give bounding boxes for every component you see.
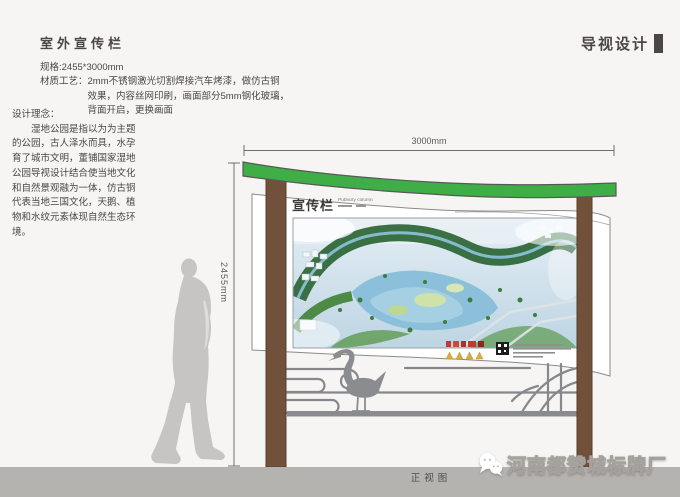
concept-label: 设计理念： xyxy=(12,108,139,123)
human-silhouette xyxy=(151,259,225,465)
dim-width-label: 3000mm xyxy=(329,136,529,146)
right-header-title: 导视设计 xyxy=(581,33,649,54)
spec-size: 规格:2455*3000mm xyxy=(40,61,289,75)
spec-block: 室外宣传栏 规格:2455*3000mm 材质工艺： 2mm不锈钢激光切割焊接汽… xyxy=(40,33,289,118)
material-line: 效果，内容丝网印刷，画面部分5mm钢化玻璃， xyxy=(88,90,290,104)
header-accent-bar xyxy=(654,34,663,53)
park-aerial-image xyxy=(260,214,595,351)
green-top-band xyxy=(243,162,616,198)
dim-height-label: 2455mm xyxy=(219,262,229,303)
right-post xyxy=(577,192,592,467)
concept-body: 湿地公园是指以为为主题的公园，古人泽水而具，水孕育了城市文明，董铺国家湿地公园导… xyxy=(12,123,139,241)
watermark: 河南都赞城标牌厂 xyxy=(477,451,667,478)
panel-subtext-bars xyxy=(338,205,381,207)
lattice-bottom-rail xyxy=(287,411,577,417)
qr-code-icon xyxy=(496,342,509,355)
left-post xyxy=(266,171,286,467)
lattice-ornament xyxy=(287,364,577,413)
panel-title: 宣传栏 xyxy=(292,195,334,214)
factory-name: 河南都赞城标牌厂 xyxy=(507,451,667,478)
material-line: 2mm不锈钢激光切割焊接汽车烤漆，做仿古铜 xyxy=(88,75,290,89)
header-right: 导视设计 xyxy=(581,33,663,54)
view-label: 正视图 xyxy=(371,470,491,484)
concept-block: 设计理念： 湿地公园是指以为为主题的公园，古人泽水而具，水孕育了城市文明，董铺国… xyxy=(12,108,139,240)
design-sheet: 室外宣传栏 规格:2455*3000mm 材质工艺： 2mm不锈钢激光切割焊接汽… xyxy=(0,0,680,497)
wechat-icon xyxy=(477,451,504,478)
page-title: 室外宣传栏 xyxy=(40,33,289,52)
panel-title-group: 宣传栏 Publicity column xyxy=(292,195,381,214)
panel-subtitle: Publicity column xyxy=(338,198,373,203)
